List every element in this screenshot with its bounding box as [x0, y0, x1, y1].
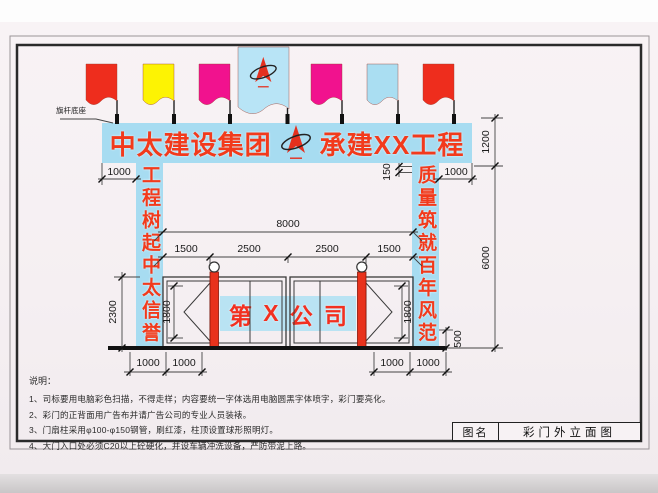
dim-bottom-right: 1000: [416, 357, 439, 369]
banner-text-right: 承建XX工程: [320, 125, 465, 162]
gate-sign-char: 公: [290, 297, 313, 331]
dim-overhang-left: 1000: [107, 166, 130, 178]
note-item: 4、大门入口处必须C20以上砼硬化，并设车辆冲洗设备，严防带泥上路。: [29, 440, 489, 452]
gate-banner-board: 中太建设集团 承建XX工程: [102, 123, 472, 163]
dim-panel-height-left: 1800: [161, 300, 173, 323]
dim-bottom-right: 1000: [380, 357, 403, 369]
note-item: 2、彩门的正背面用广告布并请广告公司的专业人员装裱。: [29, 409, 489, 421]
dim-bottom-left: 1000: [136, 357, 159, 369]
dim-segment: 2500: [237, 243, 260, 255]
photo-edge-shadow: [0, 474, 658, 493]
dim-gate-height: 2300: [107, 300, 119, 323]
dim-beam-offset: 150: [381, 163, 393, 181]
title-block: 图名 彩门外立面图: [452, 422, 641, 441]
banner-text-left: 中太建设集团: [110, 125, 272, 162]
left-column-slogan: 工程树起中太信誉: [136, 163, 163, 348]
gate-sign-char: X: [263, 300, 278, 327]
dim-opening-width: 8000: [276, 218, 299, 230]
dim-base-height: 500: [452, 330, 464, 348]
company-logo-icon: [279, 124, 313, 162]
right-column-slogan: 质量筑就百年风范: [412, 163, 439, 348]
gate-sign-char: 司: [324, 297, 347, 331]
title-block-label: 图名: [453, 423, 499, 440]
dim-banner-height: 1200: [480, 130, 492, 153]
dim-segment: 2500: [315, 243, 338, 255]
dim-bottom-left: 1000: [172, 357, 195, 369]
scanned-drawing-photo: 中太建设集团 承建XX工程 工程树起中太信誉 质量筑就百年风范 第 X 公 司: [0, 0, 658, 493]
gate-sign-char: 第: [229, 297, 252, 331]
drawing-title: 彩门外立面图: [499, 423, 640, 440]
notes-block: 说明： 1、司标要用电脑彩色扫描，不得走样；内容要统一字体选用电脑圆黑字体喷字，…: [29, 374, 489, 455]
left-column-board: 工程树起中太信誉: [136, 163, 163, 348]
logo-caption-mark: [290, 158, 302, 159]
note-item: 1、司标要用电脑彩色扫描，不得走样；内容要统一字体选用电脑圆黑字体喷字，彩门要亮…: [29, 393, 489, 405]
dim-overhang-right: 1000: [444, 166, 467, 178]
flag-base-label: 旗杆底座: [56, 105, 86, 116]
dim-segment: 1500: [174, 243, 197, 255]
notes-heading: 说明：: [29, 374, 489, 387]
dim-segment: 1500: [377, 243, 400, 255]
gate-sign-band: 第 X 公 司: [220, 296, 356, 331]
right-column-board: 质量筑就百年风范: [412, 163, 439, 348]
dim-panel-height-right: 1800: [402, 300, 414, 323]
note-item: 3、门扇柱采用φ100-φ150钢管，刷红漆，柱顶设置球形照明灯。: [29, 424, 489, 436]
dim-column-height: 6000: [480, 246, 492, 269]
